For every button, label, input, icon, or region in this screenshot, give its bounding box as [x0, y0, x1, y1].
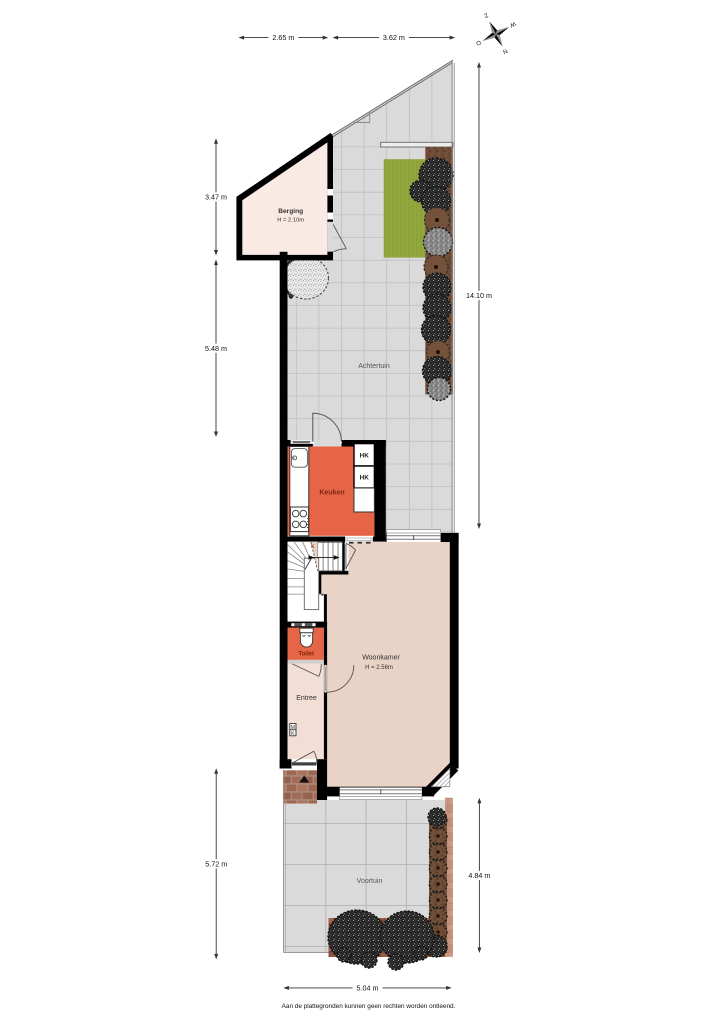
svg-text:K: K: [311, 544, 315, 550]
svg-text:4.84 m: 4.84 m: [468, 871, 490, 880]
svg-text:N: N: [501, 47, 508, 54]
svg-text:Toilet: Toilet: [298, 651, 314, 657]
svg-text:5.48 m: 5.48 m: [205, 344, 227, 353]
svg-text:M: M: [291, 725, 295, 731]
svg-text:W: W: [508, 20, 516, 28]
svg-text:Aan de plattegronden kunnen ge: Aan de plattegronden kunnen geen rechten…: [282, 1003, 456, 1010]
svg-text:HK: HK: [360, 453, 370, 460]
svg-text:Berging: Berging: [278, 208, 303, 215]
svg-text:Keuken: Keuken: [319, 490, 344, 497]
svg-text:3.47 m: 3.47 m: [205, 192, 227, 201]
svg-text:Entree: Entree: [296, 695, 317, 702]
svg-text:O: O: [474, 38, 481, 46]
svg-text:5.04 m: 5.04 m: [357, 983, 379, 992]
svg-text:Achtertuin: Achtertuin: [358, 363, 390, 370]
svg-text:HK: HK: [360, 475, 370, 482]
svg-text:Z: Z: [482, 11, 488, 18]
svg-text:5.72 m: 5.72 m: [205, 859, 227, 868]
svg-text:K: K: [291, 731, 295, 737]
svg-text:Voortuin: Voortuin: [357, 878, 383, 885]
svg-text:H = 2.10m: H = 2.10m: [277, 218, 304, 224]
svg-text:14.10 m: 14.10 m: [466, 291, 492, 300]
svg-text:2.65 m: 2.65 m: [272, 33, 294, 42]
svg-text:3.62 m: 3.62 m: [383, 33, 405, 42]
svg-text:Woonkamer: Woonkamer: [362, 655, 400, 662]
svg-text:H = 2.56m: H = 2.56m: [365, 665, 393, 671]
